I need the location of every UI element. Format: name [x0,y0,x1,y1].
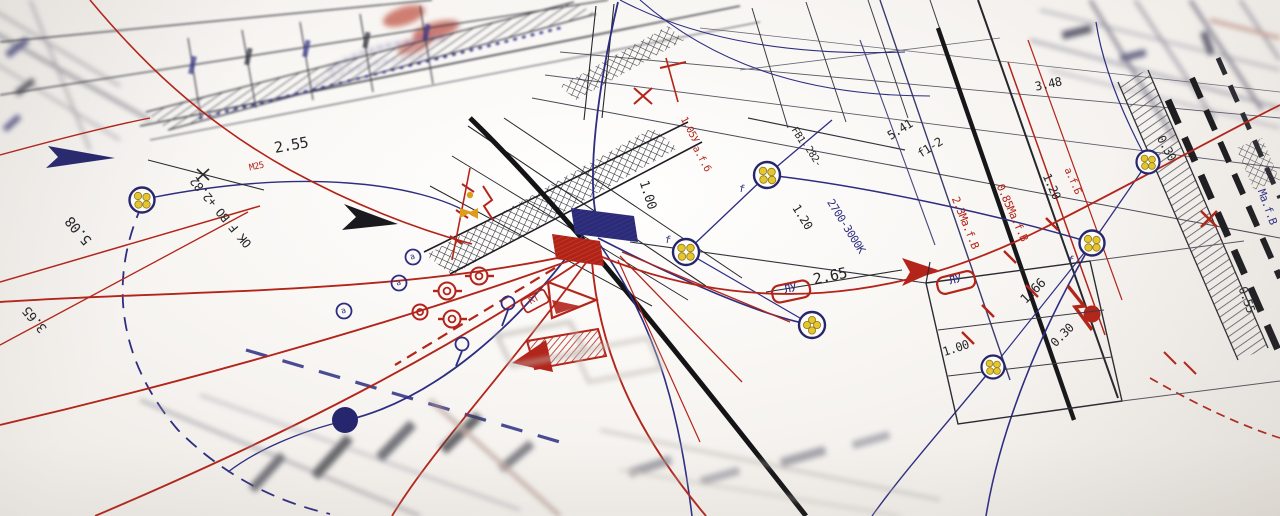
dimension-label: 3.48 [1034,74,1063,93]
junction-tag: ЛУ [783,281,799,296]
dimension-label: 1.00 [636,179,659,212]
red-triangle-outline [548,282,596,318]
red-socket-symbol [433,283,462,300]
circuit-label: 1.05У [678,115,701,145]
cable-group [1080,231,1105,256]
phase-label: f [664,235,672,247]
device-label: 282- [803,144,824,169]
junction-tag: ЛУ [948,272,964,288]
cable-spec-label: 2.3Ма.f.В [949,195,982,252]
cable-group [1137,151,1160,174]
circled-letter-symbol: а [409,251,417,261]
dimension-label: 0.30 [1048,321,1077,350]
cable-group [754,162,780,188]
lamp-spec-label: 2700-3000K [824,197,868,257]
dimension-label: 2.55 [273,133,310,157]
conduit-label: М25 [248,161,265,174]
riser-runs-right [860,0,1280,420]
navy-arrowhead [46,146,115,168]
hatched-duct-band [1118,70,1268,360]
dimension-label: 3.65 [20,303,50,335]
red-block [552,234,604,266]
cable-group [130,188,155,213]
phase-label: f1-2 [915,134,945,160]
blueprint-drawing: 2.55М25OK F BO +2.825.083.651.05Уа.f.б1.… [0,0,1280,516]
phase-label: f [738,184,746,196]
cable-spec-label: Ма.f.В [1255,187,1280,227]
circled-letter-symbol: а [340,305,348,315]
cable-group [673,239,699,265]
circuit-label: а.f.б [690,144,714,174]
cable-group [799,312,825,338]
cable-spec-label: а.f.Б [1062,166,1083,196]
navy-node-blob [332,407,358,433]
cable-group [982,356,1005,379]
cable-spec-label: 0.85Ма.f.В [994,182,1031,244]
orange-dot [467,192,473,198]
dashed-navy-curve [123,205,330,514]
phase-label: f [1067,255,1075,267]
circled-letter-symbol: а [395,277,403,287]
fault-blob [1084,306,1101,323]
dimension-label: 1.20 [789,202,815,232]
blueprint-photo: 2.55М25OK F BO +2.825.083.651.05Уа.f.б1.… [0,0,1280,516]
dimension-label: 1.00 [941,337,971,359]
dimension-label: 5.08 [63,213,96,248]
